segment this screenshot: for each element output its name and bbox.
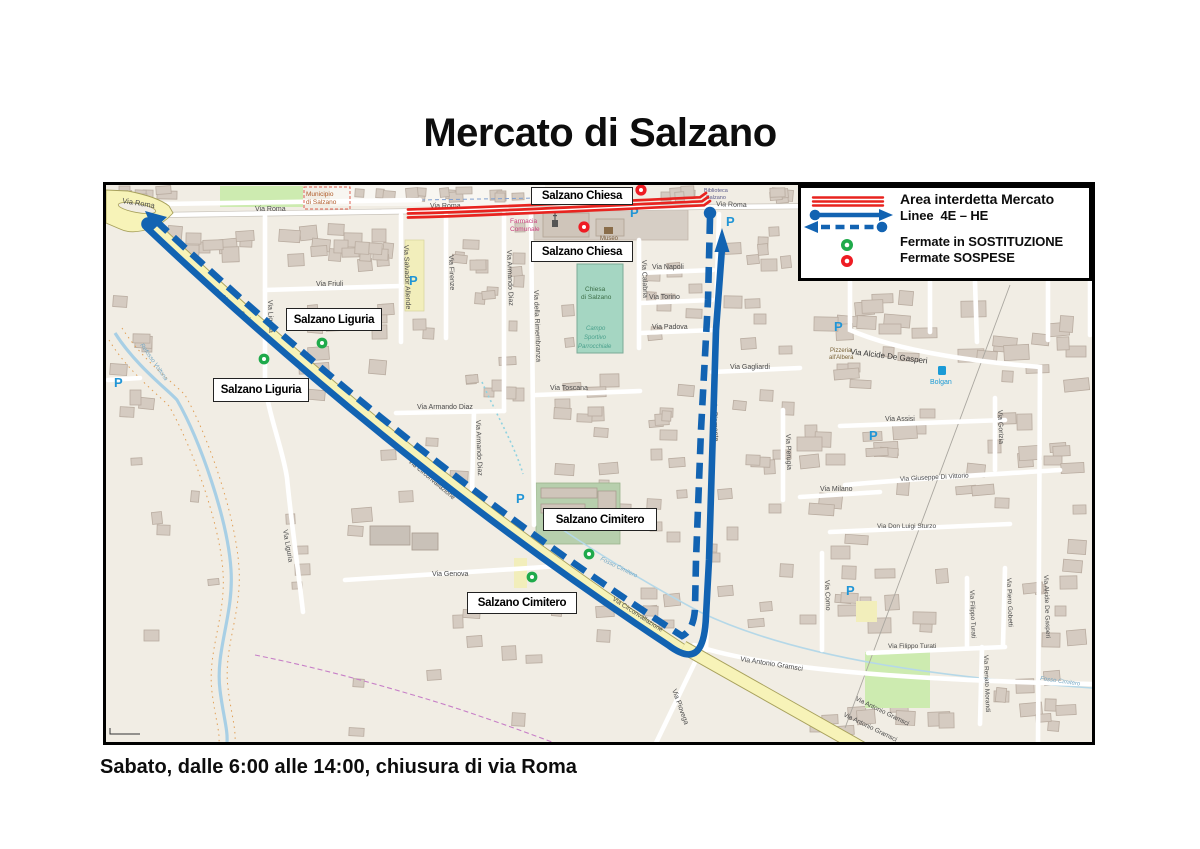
svg-text:Municipio: Municipio bbox=[306, 191, 334, 198]
svg-text:P: P bbox=[834, 319, 843, 334]
svg-text:Via Genova: Via Genova bbox=[432, 571, 469, 578]
svg-text:P: P bbox=[869, 428, 878, 443]
svg-text:Campo: Campo bbox=[586, 326, 606, 332]
svg-text:Via Armando Diaz: Via Armando Diaz bbox=[417, 404, 473, 411]
svg-text:Via Gorizia: Via Gorizia bbox=[996, 410, 1004, 444]
svg-text:P: P bbox=[409, 273, 418, 288]
svg-text:Pizzeria: Pizzeria bbox=[830, 348, 852, 354]
svg-text:Via Filippo Turati: Via Filippo Turati bbox=[888, 643, 936, 650]
svg-text:P: P bbox=[516, 491, 525, 506]
svg-text:Sportivo: Sportivo bbox=[584, 335, 607, 341]
svg-text:Chiesa: Chiesa bbox=[585, 286, 606, 293]
svg-text:Via Milano: Via Milano bbox=[820, 486, 853, 493]
svg-text:all'Albera: all'Albera bbox=[829, 355, 854, 361]
svg-text:Biblioteca: Biblioteca bbox=[704, 188, 729, 194]
svg-text:Via Friuli: Via Friuli bbox=[316, 281, 344, 288]
svg-text:P: P bbox=[846, 583, 855, 598]
svg-text:Bolgan: Bolgan bbox=[930, 379, 952, 386]
svg-text:Via Calabria: Via Calabria bbox=[640, 260, 648, 298]
svg-text:Via Perugia: Via Perugia bbox=[784, 434, 792, 470]
svg-text:Via Assisi: Via Assisi bbox=[885, 416, 915, 423]
svg-text:P: P bbox=[114, 375, 123, 390]
svg-text:P: P bbox=[726, 214, 735, 229]
svg-text:Via Roma: Via Roma bbox=[255, 206, 286, 213]
svg-text:Via Don Luigi Sturzo: Via Don Luigi Sturzo bbox=[877, 523, 937, 530]
svg-text:Via Roma: Via Roma bbox=[716, 201, 747, 209]
svg-text:Parrocchiale: Parrocchiale bbox=[578, 344, 612, 350]
svg-text:Via Torino: Via Torino bbox=[649, 294, 680, 301]
svg-text:Farmacia: Farmacia bbox=[510, 218, 537, 225]
svg-text:Via Toscana: Via Toscana bbox=[550, 385, 588, 392]
svg-text:Via Gagliardi: Via Gagliardi bbox=[730, 364, 770, 371]
svg-text:Via Napoli: Via Napoli bbox=[652, 264, 684, 271]
svg-text:di Salzano: di Salzano bbox=[581, 294, 612, 301]
svg-text:Via Firenze: Via Firenze bbox=[447, 255, 455, 291]
svg-text:Comunale: Comunale bbox=[510, 226, 540, 233]
svg-text:Via Como: Via Como bbox=[823, 580, 831, 611]
svg-text:di Salzano: di Salzano bbox=[306, 199, 337, 206]
svg-text:Via Padova: Via Padova bbox=[652, 324, 688, 331]
